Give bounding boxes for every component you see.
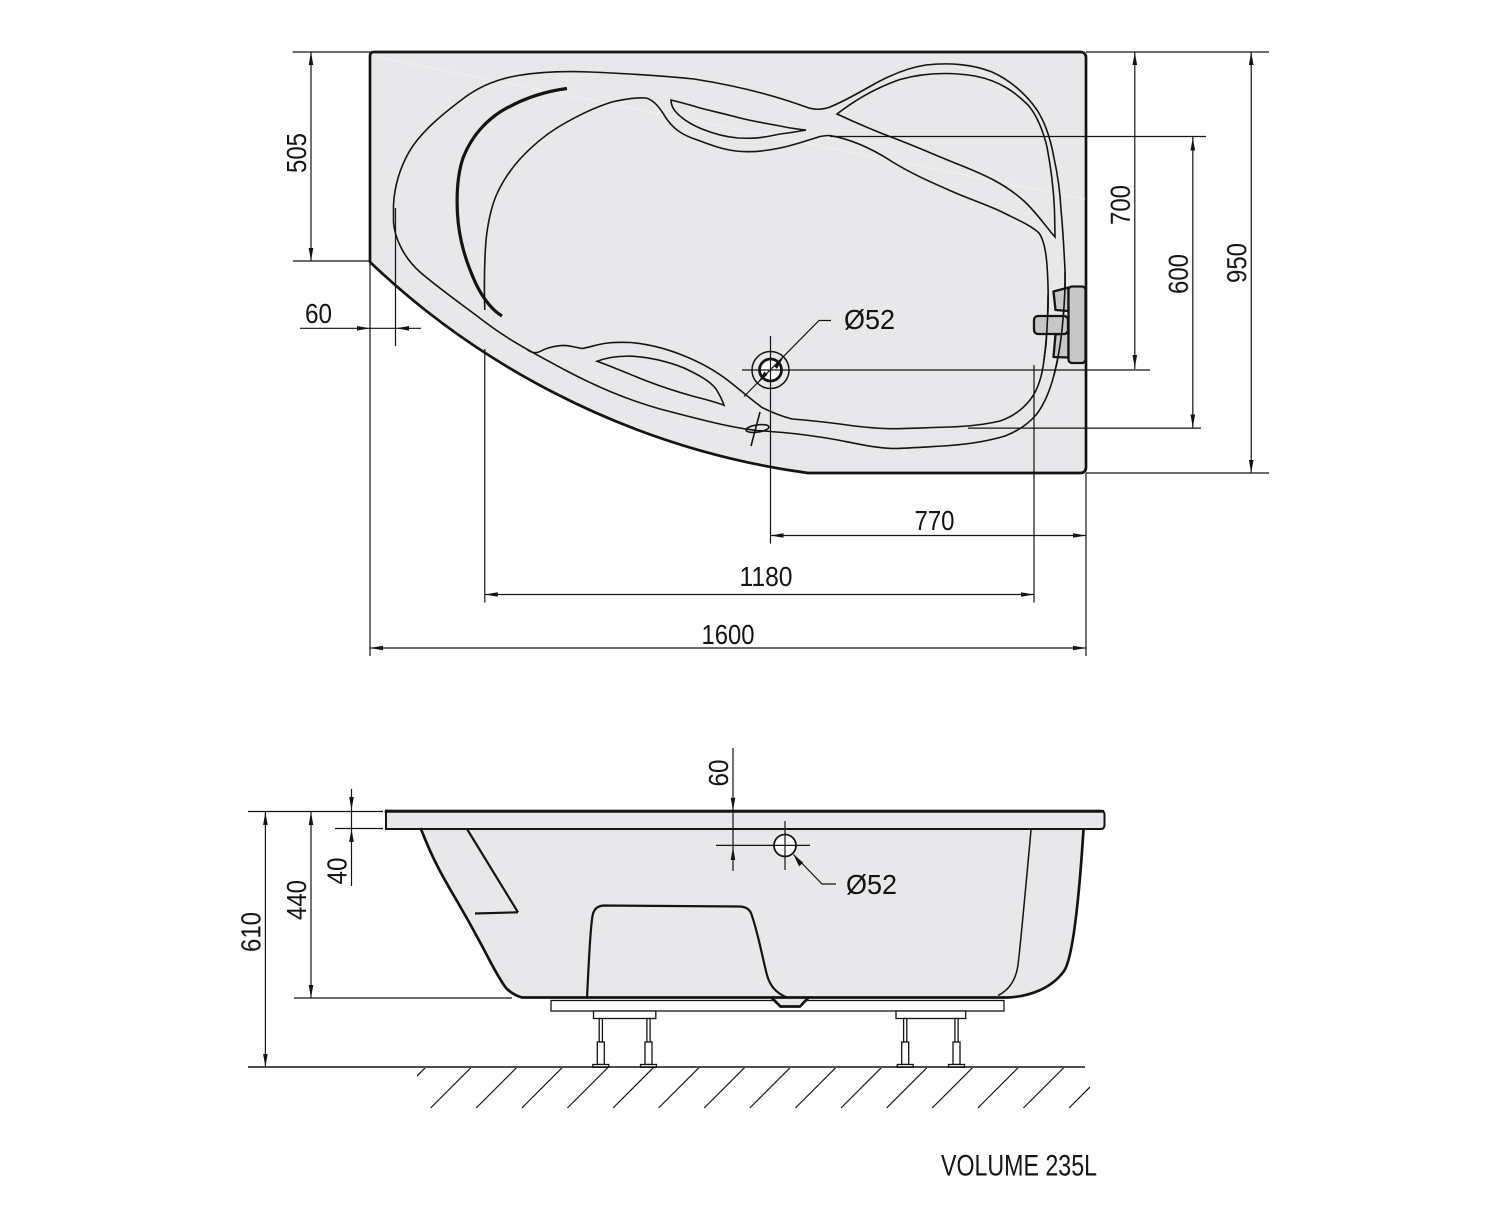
svg-text:950: 950 (1221, 243, 1252, 283)
svg-text:Ø52: Ø52 (846, 869, 897, 900)
svg-text:700: 700 (1105, 185, 1136, 225)
svg-text:40: 40 (322, 858, 353, 885)
svg-text:60: 60 (305, 298, 332, 329)
svg-text:770: 770 (915, 505, 955, 536)
svg-text:610: 610 (235, 912, 266, 952)
svg-text:505: 505 (281, 133, 312, 173)
svg-text:600: 600 (1163, 254, 1194, 294)
svg-text:1180: 1180 (740, 561, 793, 592)
svg-text:Ø52: Ø52 (844, 304, 895, 335)
svg-text:VOLUME 235L: VOLUME 235L (941, 1150, 1097, 1183)
svg-text:440: 440 (281, 880, 312, 920)
svg-text:1600: 1600 (702, 619, 755, 650)
svg-text:60: 60 (703, 760, 734, 787)
